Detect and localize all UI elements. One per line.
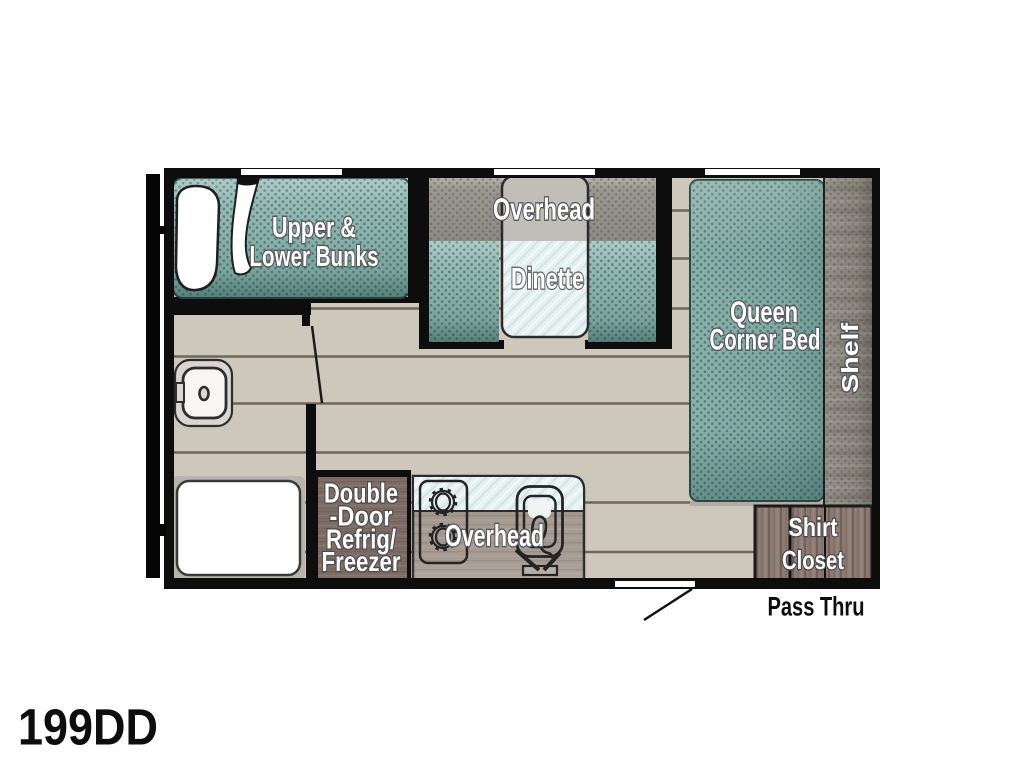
svg-text:Dinette: Dinette xyxy=(511,263,584,296)
svg-text:Shirt: Shirt xyxy=(789,512,838,542)
svg-text:Lower Bunks: Lower Bunks xyxy=(250,241,379,273)
svg-text:Closet: Closet xyxy=(782,545,844,575)
svg-text:Overhead: Overhead xyxy=(445,518,544,553)
svg-text:Pass Thru: Pass Thru xyxy=(768,592,865,622)
svg-text:Upper &: Upper & xyxy=(272,212,356,244)
svg-text:Shelf: Shelf xyxy=(837,323,863,393)
svg-text:Overhead: Overhead xyxy=(493,192,595,227)
svg-text:Corner Bed: Corner Bed xyxy=(710,324,821,357)
svg-text:Freezer: Freezer xyxy=(322,546,401,577)
svg-text:199DD: 199DD xyxy=(18,699,158,756)
